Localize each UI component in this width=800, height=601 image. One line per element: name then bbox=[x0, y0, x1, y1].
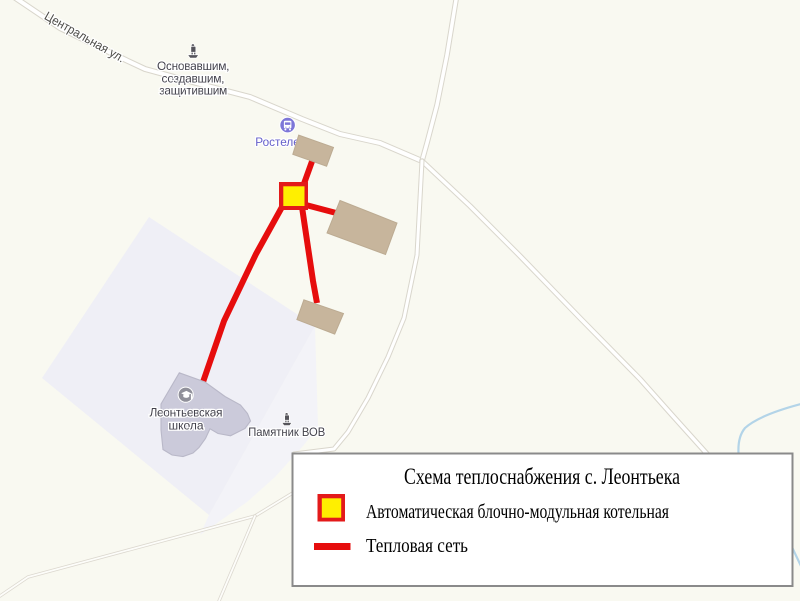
svg-text:Схема теплоснабжения с. Леонть: Схема теплоснабжения с. Леонтьека bbox=[404, 464, 680, 489]
svg-text:защитившим: защитившим bbox=[159, 83, 227, 97]
svg-text:Леонтьевская: Леонтьевская bbox=[150, 406, 223, 420]
svg-text:Памятник ВОВ: Памятник ВОВ bbox=[248, 425, 325, 439]
svg-text:школа: школа bbox=[169, 419, 204, 433]
svg-text:Автоматическая блочно-модульна: Автоматическая блочно-модульная котельна… bbox=[366, 501, 669, 523]
svg-text:Тепловая сеть: Тепловая сеть bbox=[366, 535, 468, 557]
